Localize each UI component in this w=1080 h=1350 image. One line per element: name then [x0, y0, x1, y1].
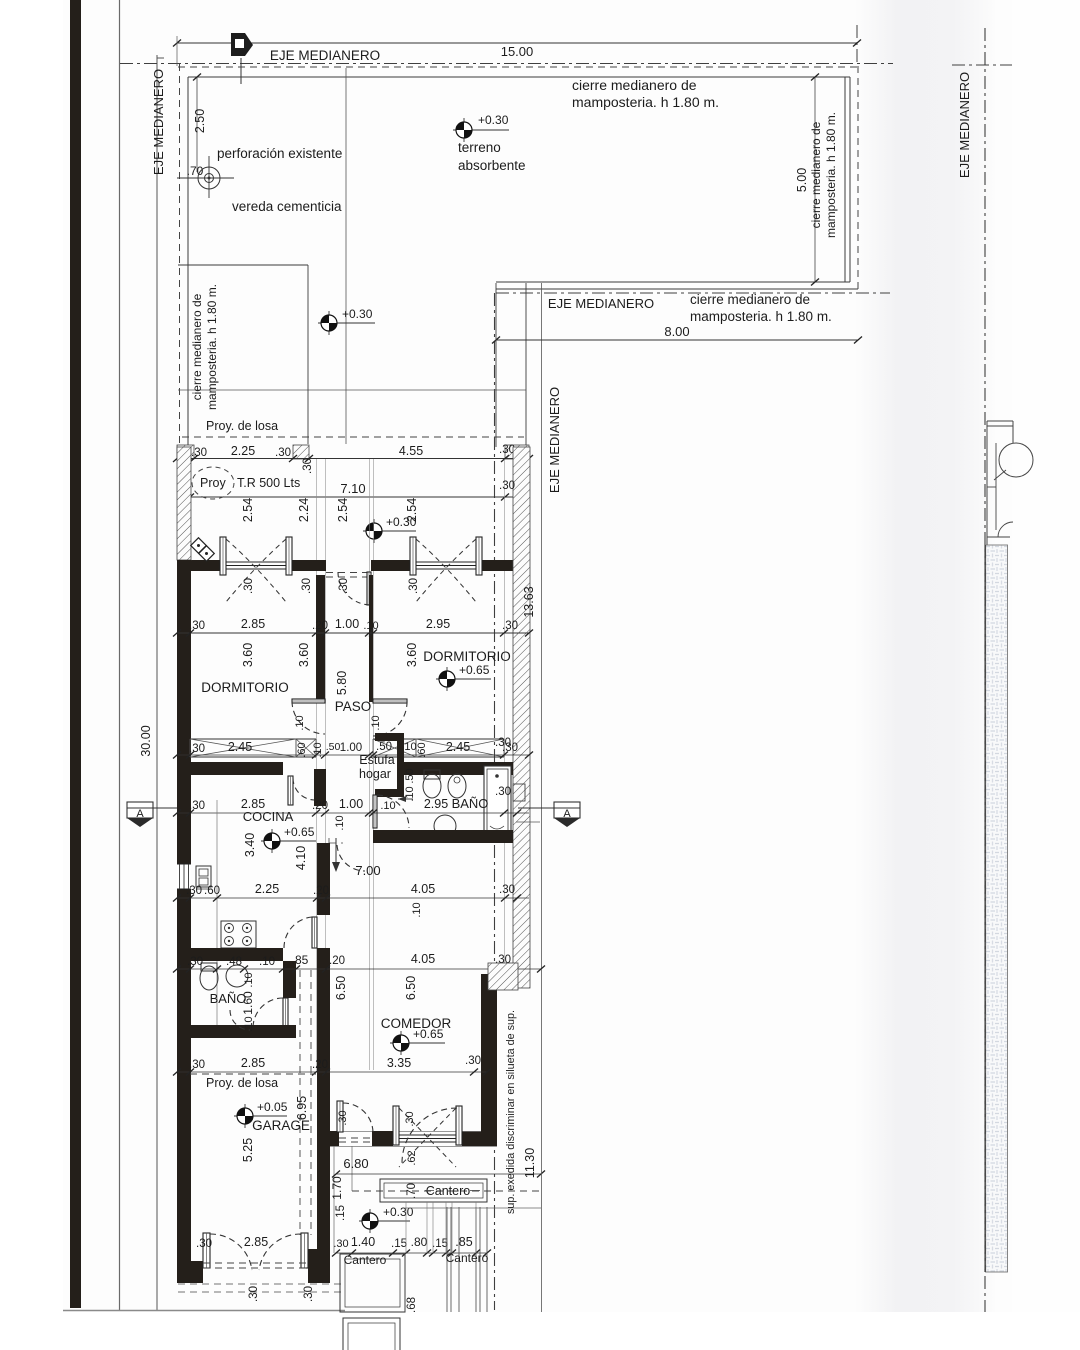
svg-text:3.60: 3.60: [241, 643, 255, 667]
svg-text:.20: .20: [312, 1059, 328, 1071]
svg-text:2.85: 2.85: [244, 1235, 268, 1249]
svg-text:.30: .30: [187, 956, 203, 968]
svg-text:EJE MEDIANERO: EJE MEDIANERO: [151, 69, 166, 175]
svg-text:2.25: 2.25: [255, 882, 279, 896]
svg-text:.30: .30: [248, 1286, 260, 1302]
svg-text:.20: .20: [312, 800, 328, 812]
svg-text:Proy. de losa: Proy. de losa: [206, 419, 278, 433]
svg-text:Proy. de losa: Proy. de losa: [206, 1076, 278, 1090]
svg-text:8.00: 8.00: [664, 324, 689, 339]
svg-text:hogar: hogar: [359, 767, 391, 781]
svg-text:1.60: 1.60: [241, 991, 255, 1015]
svg-text:30.00: 30.00: [139, 725, 153, 756]
svg-text:2.54: 2.54: [241, 498, 255, 522]
svg-text:2.85: 2.85: [241, 1056, 265, 1070]
svg-text:EJE MEDIANERO: EJE MEDIANERO: [547, 387, 562, 493]
svg-text:6.50: 6.50: [334, 976, 348, 1000]
svg-text:1.00: 1.00: [335, 617, 359, 631]
svg-text:.30: .30: [196, 1238, 212, 1250]
svg-text:PASO: PASO: [335, 699, 372, 714]
svg-text:.10: .10: [370, 715, 382, 730]
svg-text:.30: .30: [465, 1055, 481, 1067]
svg-text:mamposteria. h 1.80 m.: mamposteria. h 1.80 m.: [824, 112, 838, 238]
svg-text:cierre medianero de: cierre medianero de: [809, 121, 823, 228]
svg-text:Cantero: Cantero: [426, 1184, 471, 1198]
svg-text:3.60: 3.60: [297, 643, 311, 667]
svg-text:mamposteria. h 1.80 m.: mamposteria. h 1.80 m.: [572, 94, 719, 110]
svg-text:.30: .30: [301, 578, 313, 594]
svg-text:.30: .30: [502, 620, 518, 632]
svg-text:.30: .30: [186, 885, 202, 897]
svg-text:.10: .10: [243, 972, 255, 987]
svg-text:.10: .10: [312, 742, 324, 757]
svg-text:perforación existente: perforación existente: [217, 146, 342, 161]
svg-text:.30: .30: [338, 578, 350, 594]
svg-text:DORMITORIO: DORMITORIO: [201, 680, 289, 695]
svg-text:1.40: 1.40: [351, 1235, 375, 1249]
svg-text:+0.05: +0.05: [257, 1100, 288, 1114]
svg-text:.30: .30: [333, 1238, 348, 1250]
svg-text:.30: .30: [243, 578, 255, 594]
svg-text:+0.30: +0.30: [383, 1205, 414, 1219]
svg-text:.30: .30: [408, 578, 420, 594]
svg-text:+0.30: +0.30: [386, 515, 417, 529]
svg-text:absorbente: absorbente: [458, 158, 526, 173]
svg-text:Cantero: Cantero: [344, 1253, 387, 1267]
svg-text:4.05: 4.05: [411, 952, 435, 966]
svg-text:.85: .85: [292, 953, 309, 967]
svg-text:11.30: 11.30: [523, 1148, 537, 1178]
svg-text:cierre medianero de: cierre medianero de: [190, 293, 204, 400]
svg-text:.10: .10: [411, 902, 423, 917]
svg-text:EJE MEDIANERO: EJE MEDIANERO: [548, 296, 654, 311]
svg-text:.30: .30: [499, 884, 515, 896]
svg-text:+0.30: +0.30: [342, 307, 373, 321]
svg-text:.30: .30: [191, 447, 207, 459]
svg-text:.30: .30: [303, 1286, 315, 1302]
svg-text:.30: .30: [404, 1111, 416, 1126]
svg-text:.10: .10: [334, 815, 346, 830]
svg-text:+0.65: +0.65: [284, 825, 315, 839]
svg-text:.30: .30: [495, 737, 511, 749]
svg-text:2.24: 2.24: [297, 498, 311, 522]
svg-text:.15: .15: [335, 1205, 347, 1221]
svg-text:.30: .30: [189, 800, 205, 812]
svg-text:+0.65: +0.65: [459, 663, 490, 677]
svg-text:.50: .50: [404, 768, 416, 783]
svg-text:3.60: 3.60: [405, 643, 419, 667]
svg-text:.30: .30: [189, 620, 205, 632]
svg-text:4.55: 4.55: [399, 444, 423, 458]
svg-text:Estufa: Estufa: [359, 753, 394, 767]
svg-text:.20: .20: [312, 620, 328, 632]
svg-text:2.95: 2.95: [424, 797, 448, 811]
svg-text:BAÑO: BAÑO: [452, 796, 489, 811]
svg-text:T.R 500 Lts: T.R 500 Lts: [237, 476, 300, 490]
svg-text:EJE MEDIANERO: EJE MEDIANERO: [957, 72, 972, 178]
svg-text:15.00: 15.00: [501, 44, 534, 59]
svg-text:.30: .30: [189, 743, 205, 755]
svg-text:.62: .62: [406, 1150, 418, 1165]
svg-text:cierre medianero de: cierre medianero de: [572, 77, 697, 93]
svg-text:Proy: Proy: [200, 476, 226, 490]
svg-text:.70: .70: [406, 1183, 418, 1199]
svg-text:6.50: 6.50: [404, 976, 418, 1000]
svg-text:mamposteria. h 1.80 m.: mamposteria. h 1.80 m.: [205, 284, 219, 410]
svg-text:5.80: 5.80: [335, 671, 349, 695]
svg-text:.60: .60: [204, 885, 220, 897]
svg-text:mamposteria. h 1.80 m.: mamposteria. h 1.80 m.: [690, 309, 832, 324]
svg-text:.30: .30: [189, 1059, 205, 1071]
svg-text:.60: .60: [296, 742, 308, 757]
svg-text:5.00: 5.00: [795, 168, 809, 192]
svg-text:3.35: 3.35: [387, 1056, 411, 1070]
svg-text:+0.65: +0.65: [413, 1027, 444, 1041]
svg-text:.50: .50: [376, 741, 392, 753]
svg-text:.80: .80: [411, 1235, 428, 1249]
svg-text:7.10: 7.10: [340, 481, 365, 496]
svg-text:+0.30: +0.30: [478, 113, 509, 127]
svg-text:.85: .85: [455, 1235, 472, 1249]
svg-text:2.25: 2.25: [231, 444, 255, 458]
svg-text:.30: .30: [275, 447, 291, 459]
svg-text:.10: .10: [363, 620, 378, 632]
svg-text:.20: .20: [329, 955, 345, 967]
svg-text:.10: .10: [294, 715, 306, 730]
svg-text:.15: .15: [391, 1238, 407, 1250]
svg-text:.48: .48: [226, 956, 242, 968]
svg-text:13.63: 13.63: [522, 586, 536, 617]
svg-text:.30: .30: [302, 458, 314, 474]
svg-text:2.85: 2.85: [241, 617, 265, 631]
svg-text:.50: .50: [326, 741, 341, 753]
svg-text:2.95: 2.95: [426, 617, 450, 631]
svg-text:terreno: terreno: [458, 140, 501, 155]
svg-text:.30: .30: [499, 444, 515, 456]
svg-text:2.50: 2.50: [193, 109, 207, 133]
svg-text:.10: .10: [259, 956, 275, 968]
svg-text:1.00: 1.00: [339, 797, 363, 811]
svg-text:.15: .15: [432, 1238, 448, 1250]
svg-text:2.45: 2.45: [446, 740, 470, 754]
svg-text:.10: .10: [380, 800, 395, 812]
svg-text:.30: .30: [499, 480, 515, 492]
svg-text:2.45: 2.45: [228, 740, 252, 754]
svg-text:DORMITORIO: DORMITORIO: [423, 649, 511, 664]
svg-text:vereda cementicia: vereda cementicia: [232, 199, 342, 214]
svg-text:.20: .20: [313, 885, 329, 897]
svg-text:COCINA: COCINA: [243, 809, 294, 824]
svg-text:1.70: 1.70: [330, 1176, 344, 1200]
svg-text:cierre medianero de: cierre medianero de: [690, 292, 810, 307]
svg-text:EJE MEDIANERO: EJE MEDIANERO: [270, 48, 380, 63]
svg-text:.68: .68: [406, 1297, 418, 1313]
svg-text:2.54: 2.54: [336, 498, 350, 522]
svg-text:4.05: 4.05: [411, 882, 435, 896]
svg-text:.30: .30: [495, 786, 511, 798]
svg-text:Cantero: Cantero: [446, 1251, 489, 1265]
svg-text:5.25: 5.25: [241, 1138, 255, 1162]
svg-text:.30: .30: [337, 1110, 349, 1125]
svg-text:3.40: 3.40: [243, 833, 257, 857]
svg-text:6.80: 6.80: [343, 1156, 368, 1171]
svg-text:.60: .60: [416, 742, 428, 757]
svg-text:6.95: 6.95: [295, 1096, 309, 1120]
svg-text:sup. exedida discriminar en si: sup. exedida discriminar en silueta de s…: [505, 1010, 517, 1214]
svg-text:4.10: 4.10: [294, 846, 308, 870]
